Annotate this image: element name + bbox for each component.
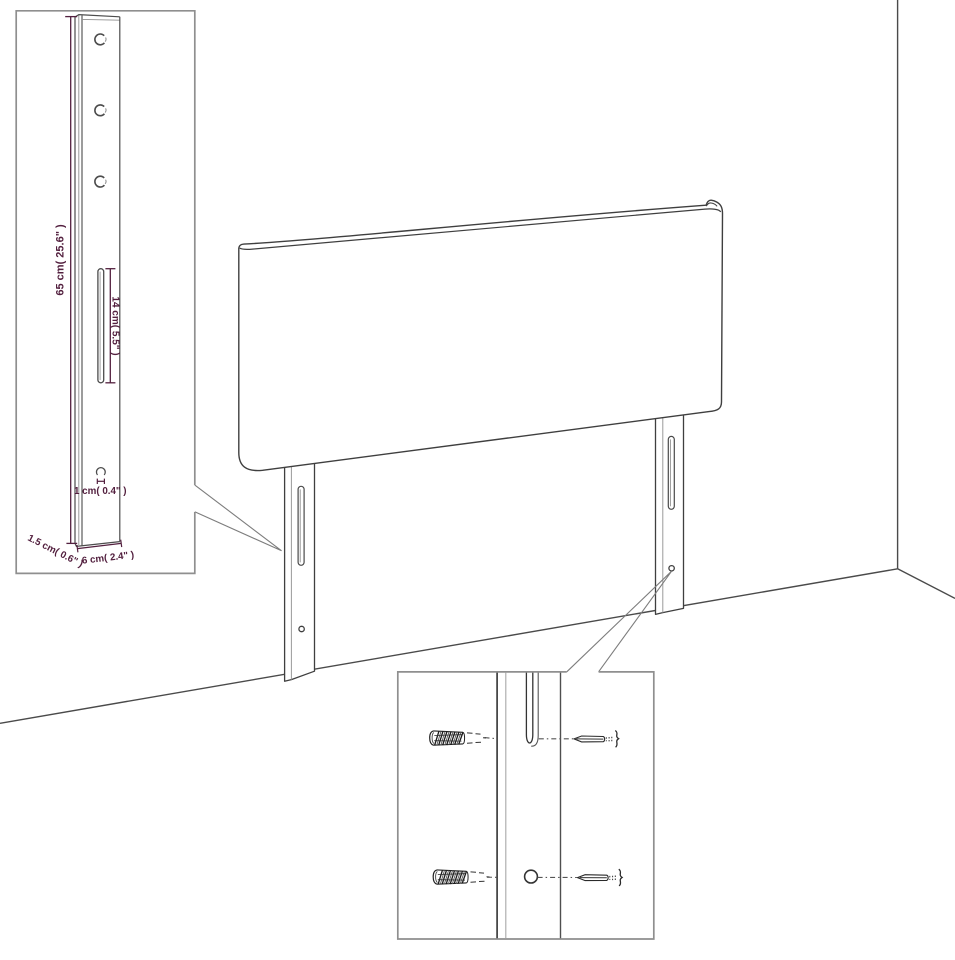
svg-text:14 cm( 5.5" ): 14 cm( 5.5" ) <box>109 296 120 355</box>
svg-text:65 cm( 25.6" ): 65 cm( 25.6" ) <box>55 224 67 296</box>
svg-text:1 cm( 0.4" ): 1 cm( 0.4" ) <box>74 486 127 497</box>
